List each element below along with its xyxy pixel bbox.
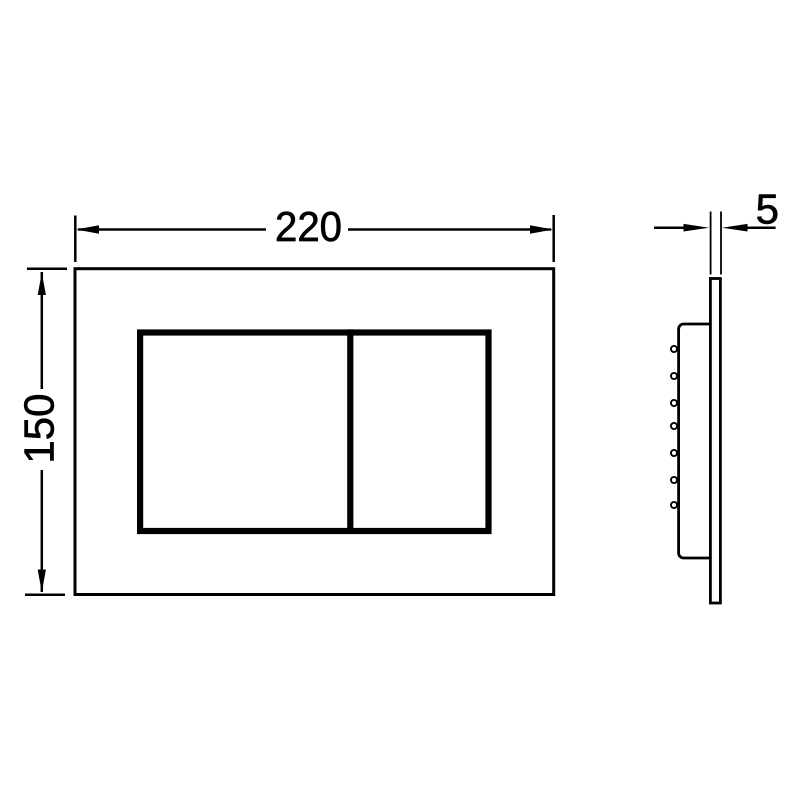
- svg-text:5: 5: [756, 185, 779, 232]
- svg-text:150: 150: [16, 394, 63, 464]
- svg-text:220: 220: [275, 203, 342, 250]
